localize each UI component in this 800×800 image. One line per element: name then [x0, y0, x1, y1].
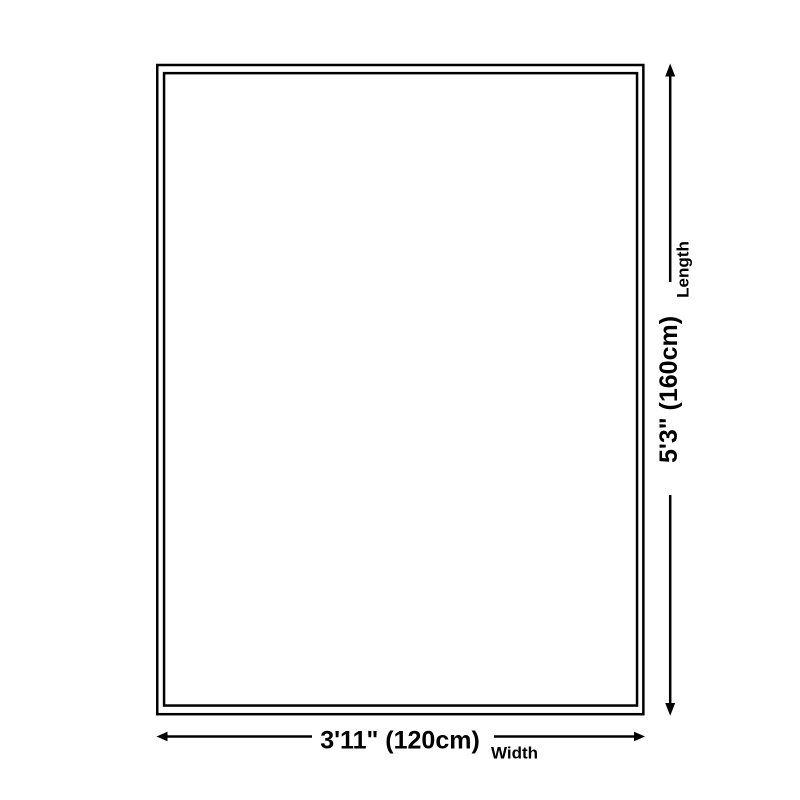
svg-text:Width: Width [491, 744, 538, 763]
svg-text:5'3" (160cm): 5'3" (160cm) [655, 316, 683, 463]
svg-text:Length: Length [673, 241, 692, 298]
svg-text:3'11" (120cm): 3'11" (120cm) [320, 726, 480, 754]
